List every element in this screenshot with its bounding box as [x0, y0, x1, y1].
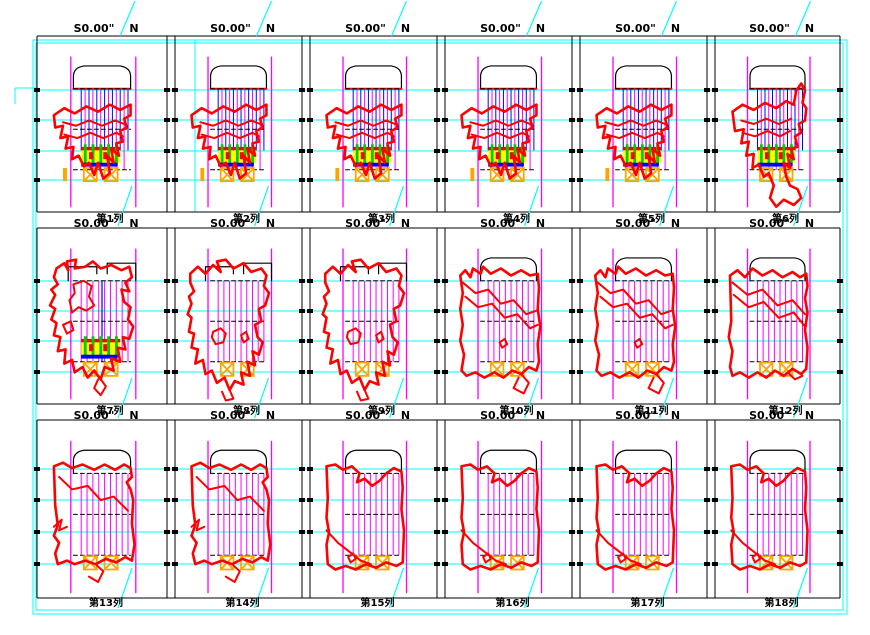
- panel-geometry: [595, 249, 676, 399]
- panel-geometry: [54, 441, 136, 592]
- panel-geometry: [731, 441, 810, 592]
- panel-18: [731, 441, 810, 592]
- panel-geometry: [460, 249, 541, 399]
- elevation-label-s: S0.00": [480, 217, 521, 230]
- elevation-label-s: S0.00": [480, 22, 521, 35]
- column-label: 第15列: [361, 596, 395, 609]
- elevation-label-s: S0.00": [480, 409, 521, 422]
- panel-geometry: [192, 441, 272, 592]
- elevation-label-s: S0.00": [210, 409, 251, 422]
- panel-15: [327, 441, 407, 592]
- elevation-label-n: N: [536, 22, 545, 35]
- elevation-label-s: S0.00": [210, 22, 251, 35]
- panel-geometry: [327, 57, 407, 207]
- elevation-label-n: N: [671, 22, 680, 35]
- row-grid-1: [34, 36, 843, 212]
- elevation-label-n: N: [129, 22, 138, 35]
- cad-sheet: S0.00"N第1列S0.00"N第7列S0.00"N第13列S0.00"N第2…: [0, 0, 870, 635]
- panel-geometry: [729, 249, 810, 399]
- panel-geometry: [597, 441, 677, 592]
- panel-9: [323, 249, 407, 400]
- elevation-label-s: S0.00": [749, 409, 790, 422]
- sheet-root: S0.00"N第1列S0.00"N第7列S0.00"N第13列S0.00"N第2…: [15, 1, 847, 614]
- column-label: 第13列: [89, 596, 123, 609]
- panel-geometry: [462, 57, 542, 207]
- elevation-label-n: N: [401, 409, 410, 422]
- cad-drawing: S0.00"N第1列S0.00"N第7列S0.00"N第13列S0.00"N第2…: [0, 0, 870, 635]
- elevation-label-s: S0.00": [345, 409, 386, 422]
- column-label: 第18列: [765, 596, 799, 609]
- elevation-label-n: N: [671, 409, 680, 422]
- panel-17: [597, 441, 677, 592]
- elevation-label-n: N: [401, 217, 410, 230]
- sheet-border: [15, 40, 847, 614]
- elevation-label-n: N: [129, 409, 138, 422]
- elevation-label-s: S0.00": [615, 409, 656, 422]
- panel-geometry: [188, 249, 272, 400]
- panel-geometry: [50, 249, 136, 399]
- panel-8: [188, 249, 272, 400]
- elevation-label-s: S0.00": [345, 22, 386, 35]
- row-grid-2: [34, 228, 843, 404]
- elevation-label-s: S0.00": [615, 217, 656, 230]
- panel-16: [462, 441, 542, 592]
- elevation-label-s: S0.00": [749, 22, 790, 35]
- panel-13: [54, 441, 136, 592]
- elevation-label-n: N: [536, 217, 545, 230]
- panel-14: [192, 441, 272, 592]
- elevation-label-s: S0.00": [74, 22, 115, 35]
- panel-6: [733, 57, 811, 207]
- labels-layer: S0.00"N第1列S0.00"N第7列S0.00"N第13列S0.00"N第2…: [74, 22, 815, 609]
- panel-1: [54, 57, 136, 207]
- row-grid-3: [34, 420, 843, 598]
- elevation-label-n: N: [671, 217, 680, 230]
- column-label: 第17列: [631, 596, 665, 609]
- panel-geometry: [462, 441, 542, 592]
- column-label: 第14列: [226, 596, 260, 609]
- elevation-label-n: N: [805, 22, 814, 35]
- elevation-label-n: N: [129, 217, 138, 230]
- panel-2: [192, 57, 272, 207]
- panel-geometry: [327, 441, 407, 592]
- elevation-label-n: N: [266, 217, 275, 230]
- panel-7: [50, 249, 136, 399]
- panel-3: [327, 57, 407, 207]
- elevation-label-s: S0.00": [210, 217, 251, 230]
- elevation-label-s: S0.00": [74, 217, 115, 230]
- panel-geometry: [54, 57, 136, 207]
- elevation-label-n: N: [805, 217, 814, 230]
- elevation-label-n: N: [266, 409, 275, 422]
- support-cluster: [81, 336, 120, 358]
- panel-12: [729, 249, 810, 399]
- panel-10: [460, 249, 541, 399]
- elevation-label-s: S0.00": [345, 217, 386, 230]
- elevation-label-n: N: [266, 22, 275, 35]
- panel-4: [462, 57, 542, 207]
- panel-geometry: [192, 57, 272, 207]
- column-label: 第16列: [496, 596, 530, 609]
- elevation-label-n: N: [805, 409, 814, 422]
- panel-geometry: [323, 249, 407, 400]
- elevation-label-n: N: [536, 409, 545, 422]
- panel-5: [597, 57, 677, 207]
- panel-geometry: [733, 57, 811, 207]
- panel-11: [595, 249, 676, 399]
- elevation-label-n: N: [401, 22, 410, 35]
- elevation-label-s: S0.00": [74, 409, 115, 422]
- elevation-label-s: S0.00": [749, 217, 790, 230]
- panel-geometry: [597, 57, 677, 207]
- elevation-label-s: S0.00": [615, 22, 656, 35]
